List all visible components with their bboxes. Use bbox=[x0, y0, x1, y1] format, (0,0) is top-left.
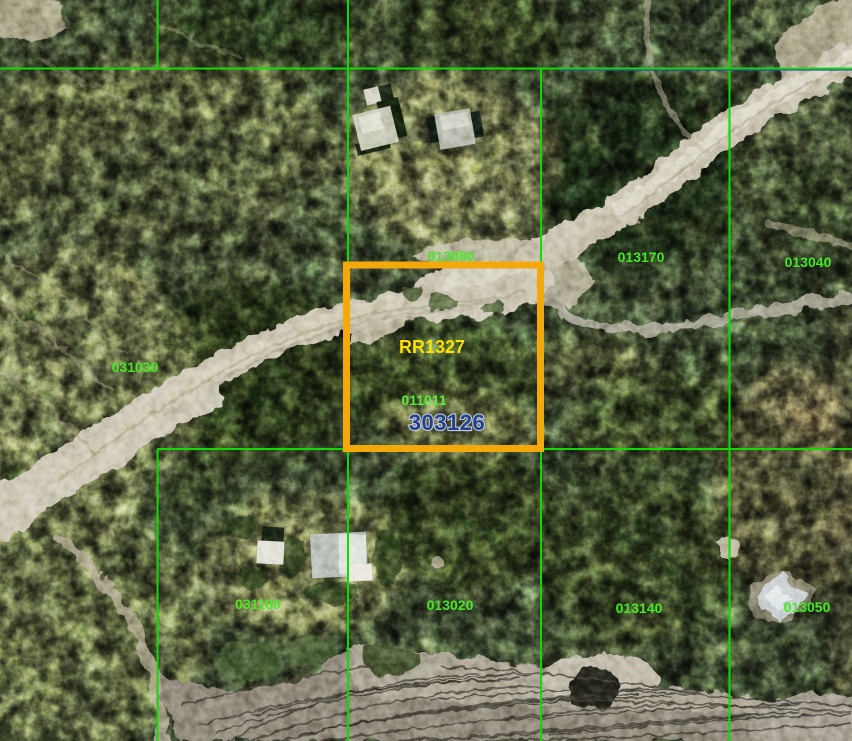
svg-text:RR1327: RR1327 bbox=[399, 337, 465, 357]
svg-text:031180: 031180 bbox=[235, 596, 281, 612]
svg-text:011011: 011011 bbox=[401, 392, 446, 408]
svg-text:013080: 013080 bbox=[428, 248, 475, 264]
svg-text:031030: 031030 bbox=[112, 359, 159, 375]
svg-text:013140: 013140 bbox=[616, 600, 663, 616]
svg-text:013050: 013050 bbox=[784, 599, 831, 615]
svg-text:013020: 013020 bbox=[427, 597, 474, 613]
svg-text:303126: 303126 bbox=[409, 410, 485, 435]
svg-text:013170: 013170 bbox=[618, 249, 665, 265]
svg-text:013040: 013040 bbox=[785, 254, 832, 270]
